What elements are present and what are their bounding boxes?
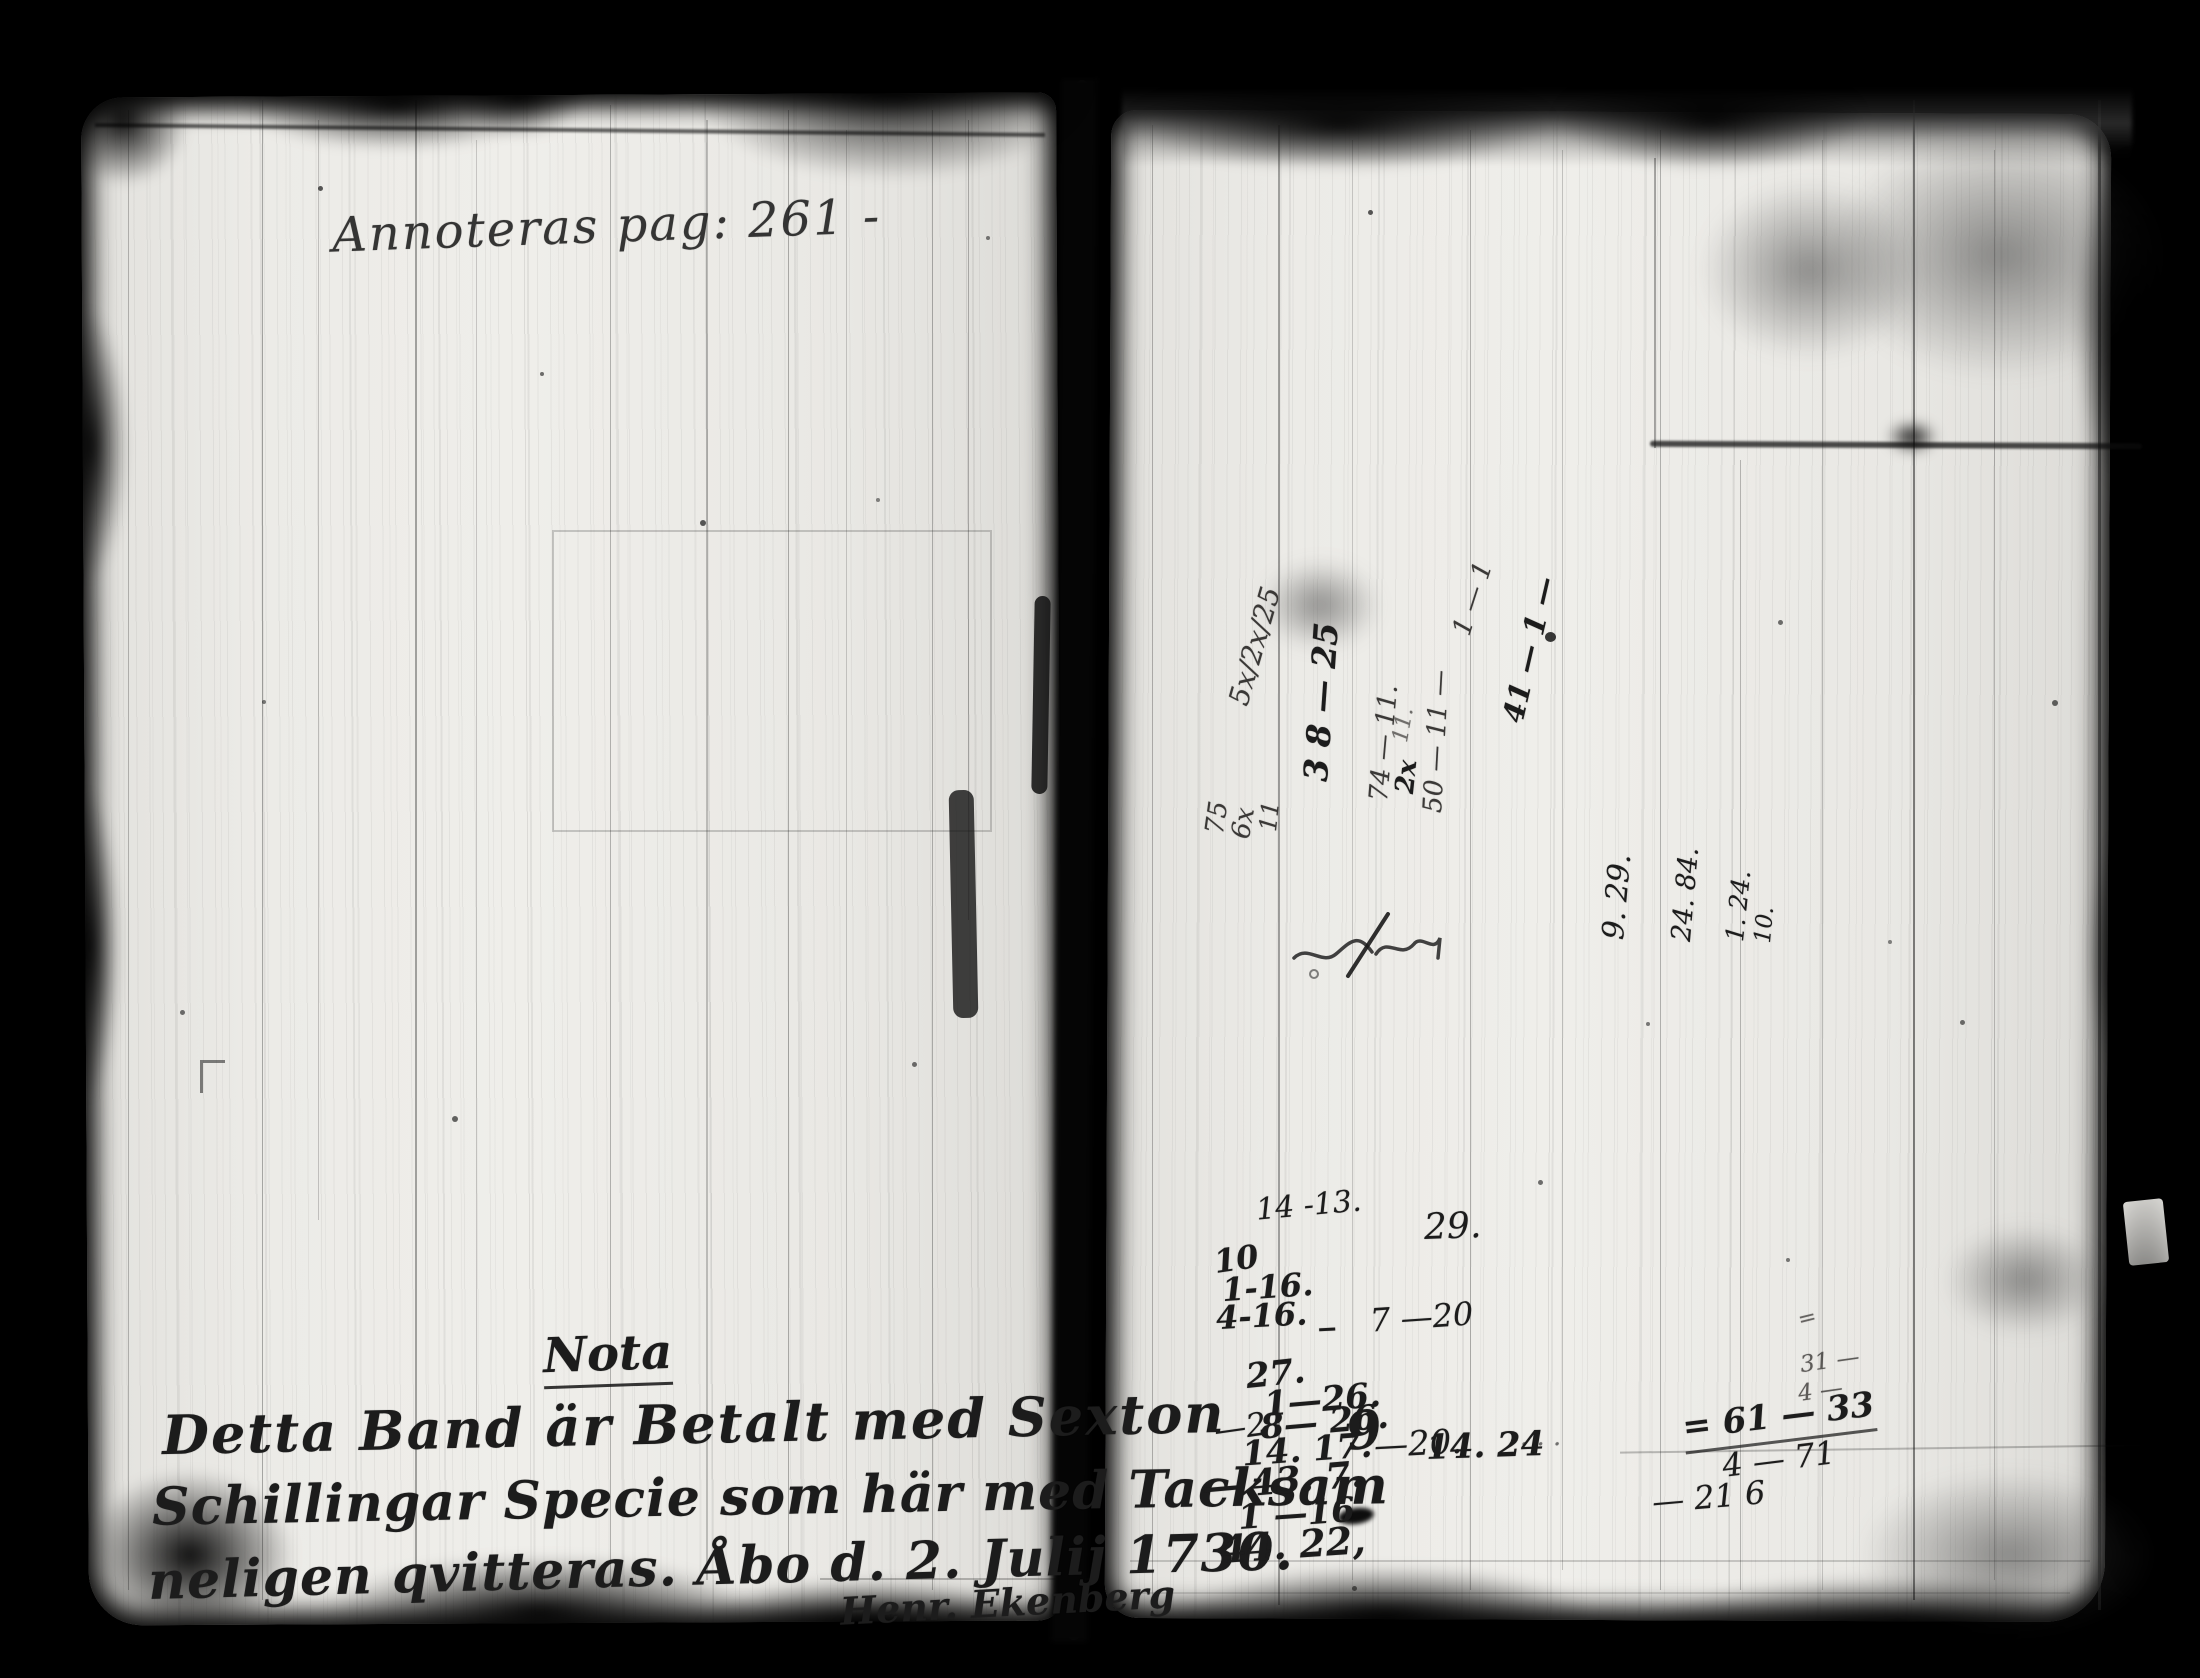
scan-line [476, 140, 477, 1440]
scan-line [846, 130, 847, 1550]
ink-speck [1888, 940, 1892, 944]
stain-blob [2090, 1180, 2200, 1600]
ink-speck [1352, 1586, 1357, 1591]
ink-speck [876, 498, 880, 502]
rotated-jotting: 9. 29. [1596, 852, 1638, 941]
stain-blob [1125, 75, 1555, 170]
stain-blob [2075, 150, 2200, 500]
ink-bar [949, 790, 979, 1018]
scanned-book-spread: Annoteras pag: 261 - Nota Detta Band är … [0, 0, 2200, 1678]
scan-line [318, 120, 319, 1220]
scan-line [415, 100, 417, 1590]
scan-line [262, 100, 263, 1600]
rotated-jotting: 11 [1254, 800, 1285, 833]
ink-speck [2052, 700, 2058, 706]
pen-mark [200, 1060, 225, 1093]
ink-speck [1778, 620, 1783, 625]
grey-stain [1700, 180, 1920, 360]
ink-speck [262, 700, 266, 704]
stain-blob [690, 0, 1090, 180]
stain-blob [2088, 820, 2183, 1090]
ink-speck [180, 1010, 185, 1015]
nota-heading: Nota [542, 1324, 673, 1384]
ink-speck [986, 236, 990, 240]
ink-speck [912, 1062, 917, 1067]
ink-speck [1368, 210, 1373, 215]
number-jotting: 7 —20 [1369, 1294, 1475, 1339]
scan-line [1562, 150, 1563, 1570]
stain-blob [452, 42, 587, 137]
number-jotting: 29. [1423, 1205, 1482, 1248]
scan-line [1470, 130, 1471, 1590]
ink-speck [540, 372, 544, 376]
ink-speck [1646, 1022, 1650, 1026]
number-jotting: 4-16. _ [1215, 1293, 1335, 1337]
stain-blob [1640, 1575, 2160, 1678]
scan-line [788, 110, 789, 1580]
scan-line [706, 120, 708, 1580]
scan-line [1660, 130, 1661, 1590]
stain-blob [52, 310, 127, 580]
scan-line [128, 110, 129, 1590]
grey-stain [1945, 1225, 2105, 1335]
stain-blob [1555, 65, 1865, 170]
number-jotting: · · · [1520, 1430, 1561, 1460]
stain-blob [55, 790, 120, 1100]
scan-line [932, 110, 933, 1590]
ink-speck [700, 520, 706, 526]
ink-speck [1786, 1258, 1790, 1262]
ink-speck [1960, 1020, 1965, 1025]
rotated-jotting: 10. [1750, 906, 1779, 945]
stain-blob [1886, 420, 1938, 454]
scan-line [1352, 140, 1353, 1580]
pen-scribble [1288, 912, 1523, 984]
patch-left-edge [1654, 158, 1656, 448]
ink-speck [1538, 1180, 1543, 1185]
nota-heading-text: Nota [542, 1324, 673, 1389]
ink-speck [452, 1116, 458, 1122]
scan-line [1152, 125, 1153, 1595]
faint-ruled-box [552, 530, 992, 832]
stain-blob [58, 55, 188, 185]
ink-speck [318, 186, 323, 191]
